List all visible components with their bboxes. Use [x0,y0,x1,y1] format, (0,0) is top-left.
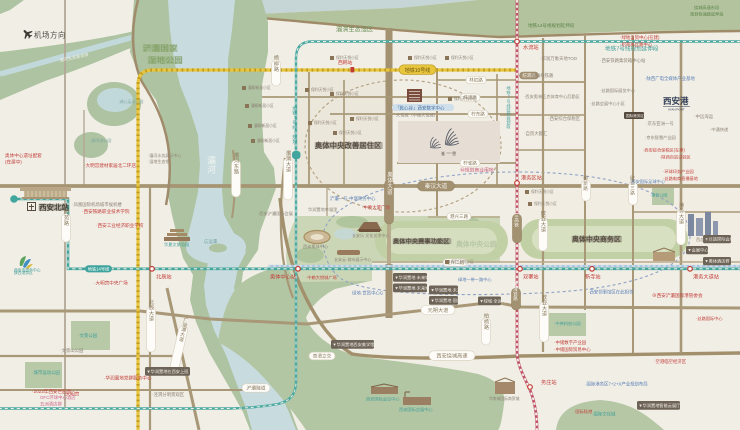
svg-text:浐灞一号·中瑞商务中心: 浐灞一号·中瑞商务中心 [330,195,376,202]
svg-text:尚苑路: 尚苑路 [63,208,69,227]
svg-text:保利天悦小区: 保利天悦小区 [414,55,437,60]
svg-text:▼华润置地西安美学馆: ▼华润置地西安美学馆 [333,341,375,348]
svg-text:広运潭: 広运潭 [204,238,218,245]
svg-text:▼华润置地·未来人居示范: ▼华润置地·未来人居示范 [431,287,478,294]
svg-text:保利天悦小区: 保利天悦小区 [336,91,359,96]
svg-text:·京东亚洲一号: ·京东亚洲一号 [646,120,674,127]
svg-text:·国际陆港: ·国际陆港 [574,408,593,415]
svg-text:·大明宫建材家居北二环店: ·大明宫建材家居北二环店 [84,162,136,169]
svg-text:华夏文旅浴园: 华夏文旅浴园 [164,241,189,248]
svg-text:·丝路国际中心: ·丝路国际中心 [696,315,723,322]
svg-text:·丝路国际展览中心: ·丝路国际展览中心 [600,87,636,94]
svg-text:五洲酒店群: 五洲酒店群 [40,401,63,408]
svg-text:灞柳新居小区: 灞柳新居小区 [248,85,271,90]
svg-text:·中储国际贸易中心: ·中储国际贸易中心 [554,346,591,353]
svg-text:奥体中央改善居住区: 奥体中央改善居住区 [314,141,382,150]
svg-text:·西安浐灞国际会展: ·西安浐灞国际会展 [258,210,294,217]
svg-text:·西安工业经济职业学校: ·西安工业经济职业学校 [96,222,144,229]
svg-text:·华润置地党群服务中心: ·华润置地党群服务中心 [104,375,152,382]
svg-text:灞渭生态湿区: 灞渭生态湿区 [336,26,373,34]
svg-text:·西安国际足球中心: ·西安国际足球中心 [630,178,666,185]
svg-text:奥体中央赛事功能区: 奥体中央赛事功能区 [393,238,450,246]
svg-text:·绿地自贸中心(在建): ·绿地自贸中心(在建) [620,34,660,41]
svg-text:华润置地幸福里: 华润置地幸福里 [308,206,337,213]
svg-text:▼华润置地在西安上班: ▼华润置地在西安上班 [147,368,189,375]
svg-text:欧亚大道: 欧亚大道 [540,209,546,234]
svg-text:保利天悦小区: 保利天悦小区 [451,55,474,60]
svg-text:▼会展中心: ▼会展中心 [688,247,710,254]
svg-text:·西安综合保税区(在建): ·西安综合保税区(在建) [643,147,685,154]
svg-text:杏渭立交: 杏渭立交 [313,353,332,360]
svg-text:绿地一带一路中心: 绿地一带一路中心 [458,276,492,283]
svg-text:湿地公园: 湿地公园 [148,55,183,65]
svg-text:北辰大道: 北辰大道 [148,298,154,323]
svg-text:灞柳新居小区: 灞柳新居小区 [257,138,280,143]
svg-text:奥体中央公园: 奥体中央公园 [455,240,497,249]
svg-text:·湿地生态馆: ·湿地生态馆 [148,158,169,164]
svg-text:保利天悦小区: 保利天悦小区 [451,259,474,264]
svg-text:·泾渭分明景观区: ·泾渭分明景观区 [152,391,185,398]
svg-text:柠东路: 柠东路 [471,111,485,118]
svg-text:奥体中心站: 奥体中心站 [270,273,296,281]
svg-text:保利天悦小区: 保利天悦小区 [531,189,554,194]
svg-text:欧亚大道: 欧亚大道 [541,293,547,318]
svg-text:陇海铁路: 陇海铁路 [513,281,519,302]
svg-text:保利天悦小区: 保利天悦小区 [339,130,362,135]
svg-text:长安云·城市展示中心: 长安云·城市展示中心 [334,256,371,262]
svg-text:徐兰高铁: 徐兰高铁 [514,207,520,229]
svg-text:OFC环球中心酒店: OFC环球中心酒店 [40,394,76,401]
svg-text:元朔大道: 元朔大道 [428,306,449,314]
svg-text:▼绿城·全运村: ▼绿城·全运村 [480,298,507,305]
svg-text:华南城国际商贸城: 华南城国际商贸城 [489,396,520,401]
svg-text:·港务公园: ·港务公园 [650,192,667,198]
svg-text:·陇海线铁路: ·陇海线铁路 [530,72,554,79]
svg-text:西安市政务中心: 西安市政务中心 [14,268,41,273]
svg-text:·灞河水务展示中心: ·灞河水务展示中心 [148,152,181,158]
svg-text:·凤凰国际机场城市候机楼: ·凤凰国际机场城市候机楼 [72,201,122,208]
svg-text:柏杨路: 柏杨路 [483,312,489,331]
svg-text:浐灞国家: 浐灞国家 [143,43,178,53]
svg-text:·湖心运动公园: ·湖心运动公园 [118,98,143,104]
svg-text:西安港: 西安港 [663,96,689,106]
svg-text:双寨站: 双寨站 [523,273,539,281]
svg-text:西安绕城高速: 西安绕城高速 [436,351,467,359]
svg-text:⊕西安浐灞国际港管委会: ⊕西安浐灞国际港管委会 [652,292,703,299]
svg-text:奥体中心遗址配套: 奥体中心遗址配套 [5,152,42,159]
svg-text:·国际文化城: ·国际文化城 [592,411,616,418]
svg-text:长安乐·文化艺术中心: 长安乐·文化艺术中心 [352,232,389,238]
svg-text:机场方向: 机场方向 [34,30,66,40]
svg-text:地铁10号线: 地铁10号线 [405,67,431,74]
svg-text:·京东智慧产业园: ·京东智慧产业园 [645,134,676,141]
svg-text:·文景山公园: ·文景山公园 [60,347,84,354]
svg-text:·国际港务区7+2+X产业规划布局: ·国际港务区7+2+X产业规划布局 [585,381,648,388]
svg-text:港务大道站: 港务大道站 [693,273,719,281]
svg-text:柠雀路: 柠雀路 [463,160,477,167]
svg-text:保利天悦小区: 保利天悦小区 [534,201,557,206]
svg-text:灞柳新居小区: 灞柳新居小区 [251,103,274,108]
svg-text:·中通快递: ·中通快递 [710,126,729,133]
svg-text:·大明宫中央广场: ·大明宫中央广场 [94,280,128,287]
svg-text:国际港务区: 国际港务区 [626,113,644,118]
svg-text:灞渭大道: 灞渭大道 [285,149,291,174]
svg-text:北辰站: 北辰站 [156,273,172,281]
svg-text:欧亚三路: 欧亚三路 [630,175,636,197]
svg-text:西安国际会展中心: 西安国际会展中心 [399,406,433,413]
svg-text:灞柳新居小区: 灞柳新居小区 [254,123,277,128]
svg-text:西部金融中心: 西部金融中心 [696,236,722,243]
svg-text:绕城高速东段: 绕城高速东段 [694,4,720,11]
svg-text:·中晚大厦广场: ·中晚大厦广场 [362,204,390,211]
svg-text:·中储数字产业园: ·中储数字产业园 [554,339,587,346]
svg-text:·空港临空经济区: ·空港临空经济区 [654,358,687,365]
svg-text:港兴三路: 港兴三路 [450,213,469,220]
svg-text:新寺站: 新寺站 [585,273,601,281]
svg-text:绿地·世贸中心G: 绿地·世贸中心G [352,290,384,297]
svg-text:·丝路会展中心小区: ·丝路会展中心小区 [590,100,625,107]
svg-text:保利天悦小区: 保利天悦小区 [356,116,379,121]
svg-text:西安国际会议中心: 西安国际会议中心 [366,396,400,403]
svg-text:秦汉大道: 秦汉大道 [425,182,448,190]
svg-text:·自贸大都汇: ·自贸大都汇 [524,130,548,137]
svg-text:规划快速路延伸段: 规划快速路延伸段 [690,11,724,18]
svg-text:西韩站: 西韩站 [338,59,353,66]
svg-text:西安奥体中心: 西安奥体中心 [303,243,329,250]
svg-text:灞河东路: 灞河东路 [233,151,239,176]
svg-text:保利天悦小区: 保利天悦小区 [311,87,334,92]
svg-text:奥体大道: 奥体大道 [386,171,393,196]
svg-text:·西安综合保税区: ·西安综合保税区 [548,115,581,122]
svg-text:大悦城（中粮大悦城）: 大悦城（中粮大悦城） [396,112,438,119]
svg-text:·西安铁路集装箱中心站: ·西安铁路集装箱中心站 [600,57,646,64]
svg-text:·陕西广电全媒体产业基地: ·陕西广电全媒体产业基地 [645,75,695,82]
svg-text:奥体中央商务区: 奥体中央商务区 [571,235,621,244]
svg-text:保利天悦小区: 保利天悦小区 [336,55,359,60]
svg-text:▼奥体酒店群: ▼奥体酒店群 [705,258,731,265]
svg-text:·西安奥林匹克体育中心后勤区: ·西安奥林匹克体育中心后勤区 [524,93,580,100]
svg-text:·华润万象天地TOD: ·华润万象天地TOD [540,55,577,62]
svg-text:·城市运动公园: ·城市运动公园 [32,369,60,376]
svg-text:·中远海运: ·中远海运 [694,113,714,120]
svg-text:▼华润置地智能云展厅: ▼华润置地智能云展厅 [639,402,681,409]
svg-text:柳新路: 柳新路 [583,175,589,192]
svg-text:「匙心谷」西安数字中心: 「匙心谷」西安数字中心 [395,105,445,112]
svg-text:地铁14号线: 地铁14号线 [88,266,110,273]
svg-text:(在建中): (在建中) [5,159,22,166]
svg-text:水流站: 水流站 [523,43,539,51]
svg-text:·丝路电商直播基地: ·丝路电商直播基地 [663,175,699,182]
svg-text:Ⓜ规划商业用地: Ⓜ规划商业用地 [460,167,494,174]
svg-text:▼华润置地·国际社区: ▼华润置地·国际社区 [431,297,470,304]
svg-text:林虹路: 林虹路 [469,77,483,84]
svg-text:XI'AN PORT: XI'AN PORT [668,108,685,112]
svg-text:·中央科创公园: ·中央科创公园 [554,320,581,327]
svg-text:务庄站: 务庄站 [541,378,557,386]
svg-text:地铁14号线规划延伸段: 地铁14号线规划延伸段 [528,22,575,29]
svg-text:保利天悦小区: 保利天悦小区 [314,120,337,125]
svg-text:·西安铁路职业技术学院: ·西安铁路职业技术学院 [82,208,130,215]
svg-text:灞河: 灞河 [206,156,216,174]
svg-text:▼华润置地·未来城市封面: ▼华润置地·未来城市封面 [395,274,442,281]
svg-text:·环球印务产业园: ·环球印务产业园 [663,168,694,175]
svg-text:保利天悦小区: 保利天悦小区 [454,96,477,101]
svg-text:·雁鸣湖公园: ·雁鸣湖公园 [90,137,111,143]
svg-text:·文景公园: ·文景公园 [78,332,98,339]
svg-text:港务区站: 港务区站 [521,174,542,182]
svg-text:·中粮大悦城广场: ·中粮大悦城广场 [306,274,337,281]
svg-text:地铁7号线(规划): 地铁7号线(规划) [292,105,298,149]
svg-text:·西安领事馆区在此相邻: ·西安领事馆区在此相邻 [588,289,634,296]
svg-text:地铁7号线延伸规划段: 地铁7号线延伸规划段 [506,85,512,131]
svg-text:·陕西自贸试验区: ·陕西自贸试验区 [660,154,691,161]
svg-text:杨柳路: 杨柳路 [273,54,279,73]
svg-text:浐灞隧道: 浐灞隧道 [246,385,265,392]
svg-text:·招商局丝路中心: ·招商局丝路中心 [620,41,653,48]
svg-text:港务大道: 港务大道 [678,201,684,226]
